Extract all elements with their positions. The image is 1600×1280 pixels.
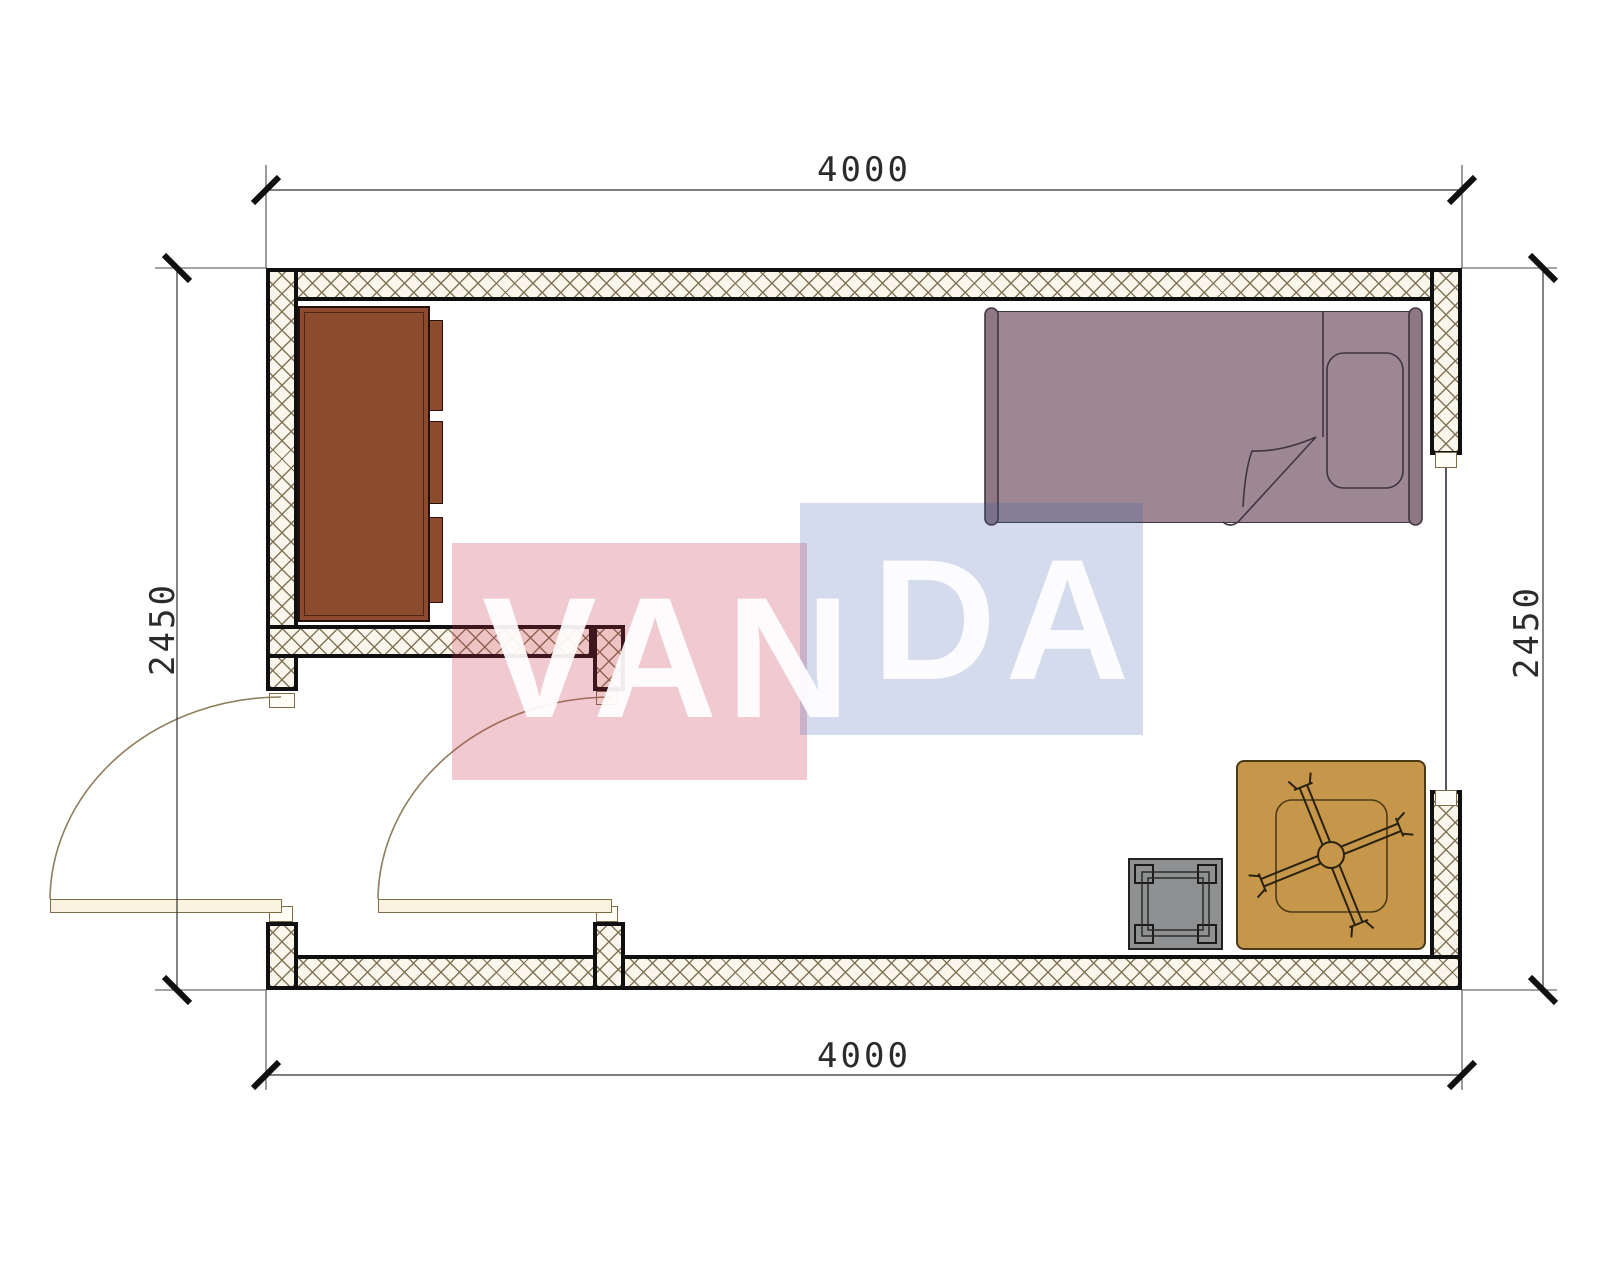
watermark-text-left: VAN xyxy=(482,572,859,744)
fan-arm-2 xyxy=(1325,863,1374,938)
bed-footboard-post xyxy=(1409,308,1422,525)
fan-arm-4 xyxy=(1288,773,1337,848)
door1-swing-arc xyxy=(50,697,281,899)
bed-headboard-post xyxy=(985,308,998,525)
dimension-label-top: 4000 xyxy=(779,150,949,190)
watermark-text-right: DA xyxy=(872,534,1138,706)
dimension-label-right: 2450 xyxy=(1507,547,1547,717)
fan-hub xyxy=(1318,842,1344,868)
bed-pillow xyxy=(1327,353,1403,488)
floor-plan-canvas: 4000 4000 2450 2450 VAN DA xyxy=(0,0,1600,1280)
dimension-label-left: 2450 xyxy=(143,544,183,714)
bed-sheet-fold-curl xyxy=(1223,522,1238,525)
fan-arm-3 xyxy=(1249,849,1324,898)
fan-arm-1 xyxy=(1339,812,1414,861)
stool-inner-rails xyxy=(1142,872,1209,936)
bed-details xyxy=(985,308,1422,525)
dimension-label-bottom: 4000 xyxy=(779,1036,949,1076)
bed-sheet-fold-flap xyxy=(1243,437,1316,507)
